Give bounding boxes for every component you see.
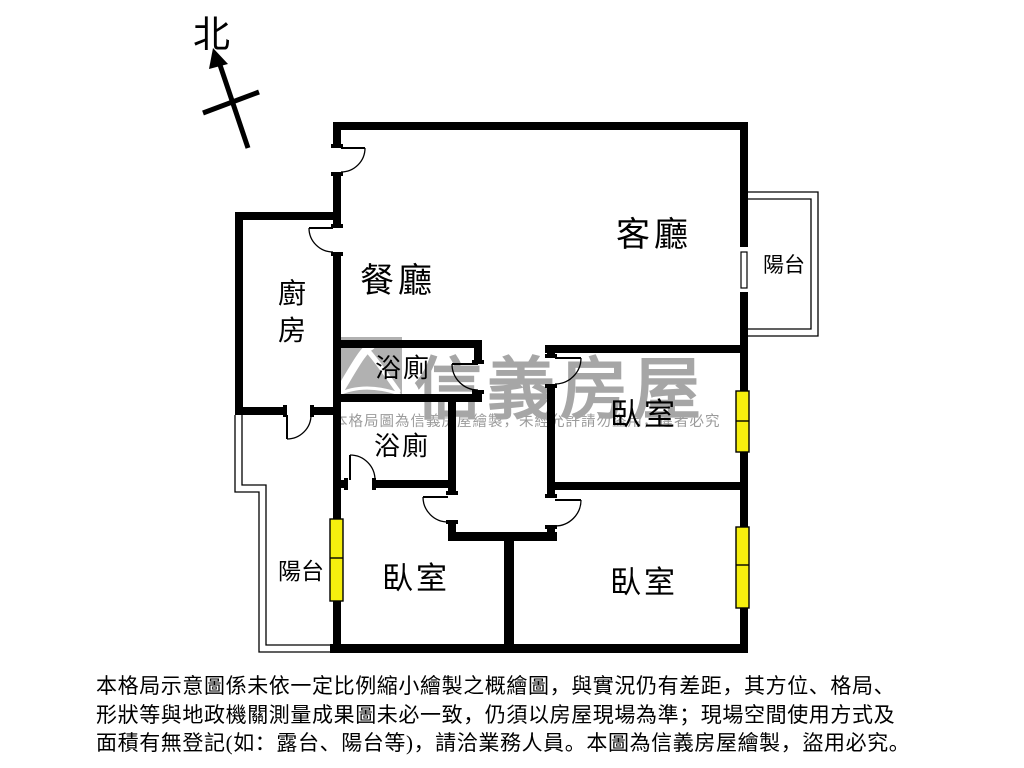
wall-kitchen-left [235, 212, 243, 415]
room-label-bedroom-bottom-right: 臥室 [610, 566, 678, 599]
wall-kitchen-top [235, 212, 341, 220]
door-bedroom-right [555, 358, 581, 384]
floor-plan-page: 本格局圖為信義房屋繪製，未經允許請勿盜用，違者必究 信義房屋 [0, 0, 1024, 768]
wall-bath1-bottom [333, 394, 482, 402]
disclaimer-line-2: 形狀等與地政機關測量成果圖未必一致，仍須以房屋現場為準；現場空間使用方式及 [96, 701, 956, 730]
room-label-balcony-right: 陽台 [763, 254, 805, 277]
wall-hall-bottom [448, 532, 557, 541]
wall-kitchen-bottom-2 [310, 407, 341, 415]
door-kitchen [309, 228, 333, 252]
wall-top [333, 122, 748, 130]
disclaimer: 本格局示意圖係未依一定比例縮小繪製之概繪圖，與實況仍有差距，其方位、格局、 形狀… [96, 672, 956, 758]
room-label-kitchen: 廚房 [277, 276, 307, 350]
doors [287, 148, 581, 526]
door-bedroom-bottom-left [423, 497, 448, 522]
room-label-dining: 餐廳 [360, 264, 436, 301]
door-bath-lower [350, 455, 375, 480]
wall-right-2 [740, 292, 748, 393]
sliding-door-living-balcony [741, 252, 747, 288]
wall-bedroom1-bottom [547, 482, 748, 490]
door-kitchen-balcony [287, 415, 311, 439]
north-label: 北 [193, 4, 230, 58]
wall-bath1-top [333, 340, 482, 348]
room-label-bath-upper: 浴廁 [375, 355, 431, 383]
wall-kitchen-bottom-1 [235, 407, 287, 415]
wall-left-3 [333, 252, 341, 519]
room-label-balcony-left: 陽台 [278, 560, 324, 585]
wall-living-divider [545, 345, 748, 353]
door-bath-upper [452, 364, 478, 390]
window-balcony-left [330, 519, 343, 601]
wall-right-1 [740, 122, 748, 247]
balcony-left-inner [242, 415, 332, 645]
window-bedroom-bottom-right [736, 527, 749, 608]
floor-plan-drawing [0, 0, 1024, 768]
wall-bottom [330, 644, 748, 653]
wall-bedroom-divider [504, 538, 514, 650]
room-label-bedroom-bottom-left: 臥室 [382, 562, 450, 595]
room-label-bath-lower: 浴廁 [374, 433, 430, 461]
disclaimer-line-3: 面積有無登記(如：露台、陽台等)，請洽業務人員。本圖為信義房屋繪製，盜用必究。 [96, 729, 956, 758]
door-bedroom-bottom-right [555, 500, 581, 526]
wall-bath2-right-1 [448, 394, 456, 495]
wall-left-4 [333, 601, 341, 653]
north-arrow-icon [203, 48, 259, 148]
wall-bedroom1-left-2 [547, 384, 555, 482]
disclaimer-line-1: 本格局示意圖係未依一定比例縮小繪製之概繪圖，與實況仍有差距，其方位、格局、 [96, 672, 956, 701]
door-jambs [283, 144, 557, 529]
wall-right-4 [740, 608, 748, 650]
wall-bath2-bottom-2 [372, 480, 456, 488]
door-entrance [341, 148, 365, 172]
balcony-left-outer [235, 415, 332, 652]
room-label-bedroom-right: 臥室 [610, 398, 678, 431]
room-label-living: 客廳 [616, 218, 692, 255]
